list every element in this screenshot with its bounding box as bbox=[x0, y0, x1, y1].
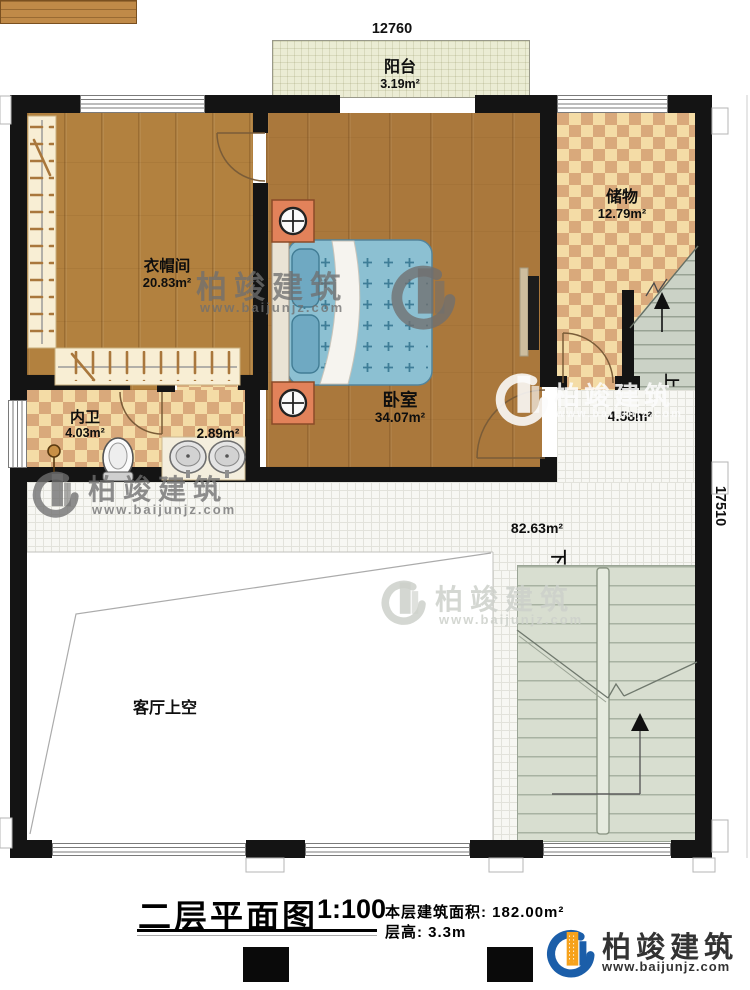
hall-floor bbox=[557, 390, 695, 482]
floor-height-label: 层高: bbox=[385, 924, 423, 941]
wall bbox=[622, 290, 634, 390]
room-label-bedroom: 卧室 34.07m² bbox=[355, 390, 445, 426]
floor-area-value: 182.00m² bbox=[492, 904, 564, 921]
wall bbox=[25, 375, 130, 390]
cloakroom-floor bbox=[27, 113, 253, 375]
window bbox=[8, 400, 27, 468]
brand-logo-icon bbox=[540, 922, 598, 986]
window bbox=[543, 843, 671, 856]
area-label-hall: 4.58m² bbox=[590, 408, 670, 424]
room-label-living-void: 客厅上空 bbox=[110, 700, 220, 718]
floor-area-info: 本层建筑面积: 182.00m² bbox=[385, 901, 564, 922]
living-void-area bbox=[27, 552, 493, 840]
wall bbox=[470, 840, 543, 858]
column-marker bbox=[487, 947, 533, 982]
stair-down-label: 下 bbox=[548, 544, 566, 570]
floor-height-info: 层高: 3.3m bbox=[385, 921, 466, 942]
window bbox=[557, 95, 668, 113]
window bbox=[80, 95, 205, 113]
brand-url: www.baijunjz.com bbox=[602, 959, 730, 974]
wall bbox=[540, 457, 557, 482]
floor-area-label: 本层建筑面积: bbox=[385, 904, 487, 921]
wall bbox=[10, 468, 27, 855]
column-marker bbox=[243, 947, 289, 982]
wall bbox=[246, 840, 305, 858]
wall bbox=[540, 113, 557, 387]
window bbox=[52, 843, 246, 856]
wall bbox=[557, 376, 567, 390]
area-label-vanity: 2.89m² bbox=[178, 426, 258, 442]
stair-side-strip bbox=[493, 570, 517, 845]
wall bbox=[10, 95, 27, 400]
wall bbox=[695, 95, 712, 855]
cloakroom-passage-floor bbox=[130, 375, 157, 390]
wall bbox=[25, 467, 557, 482]
dimension-width: 12760 bbox=[350, 21, 434, 37]
room-label-balcony: 阳台 3.19m² bbox=[360, 59, 440, 92]
room-label-bathroom: 内卫 4.03m² bbox=[50, 409, 120, 441]
main-staircase bbox=[517, 565, 699, 842]
room-label-cloakroom: 衣帽间 20.83m² bbox=[122, 258, 212, 291]
title-underline bbox=[137, 929, 377, 932]
dimension-height: 17510 bbox=[712, 464, 728, 548]
wall bbox=[205, 95, 340, 113]
wall bbox=[10, 840, 52, 858]
stair-up-label: 上 bbox=[662, 368, 679, 394]
area-label-landing: 82.63m² bbox=[492, 520, 582, 536]
wall bbox=[157, 355, 175, 392]
balcony-door-sill bbox=[0, 0, 137, 24]
room-label-storage: 储物 12.79m² bbox=[577, 189, 667, 222]
plan-scale: 1:100 bbox=[317, 894, 386, 925]
floor-height-value: 3.3m bbox=[428, 924, 466, 941]
bathroom-entry-floor bbox=[177, 375, 245, 390]
wall bbox=[475, 95, 557, 113]
window bbox=[305, 843, 470, 856]
wall bbox=[253, 183, 268, 375]
wall bbox=[671, 840, 712, 858]
title-underline-thin bbox=[137, 935, 377, 936]
floor-plan: 12760 17510 阳台 3.19m² 衣帽间 20.83m² 卧室 34.… bbox=[0, 0, 750, 990]
wall bbox=[253, 95, 268, 133]
